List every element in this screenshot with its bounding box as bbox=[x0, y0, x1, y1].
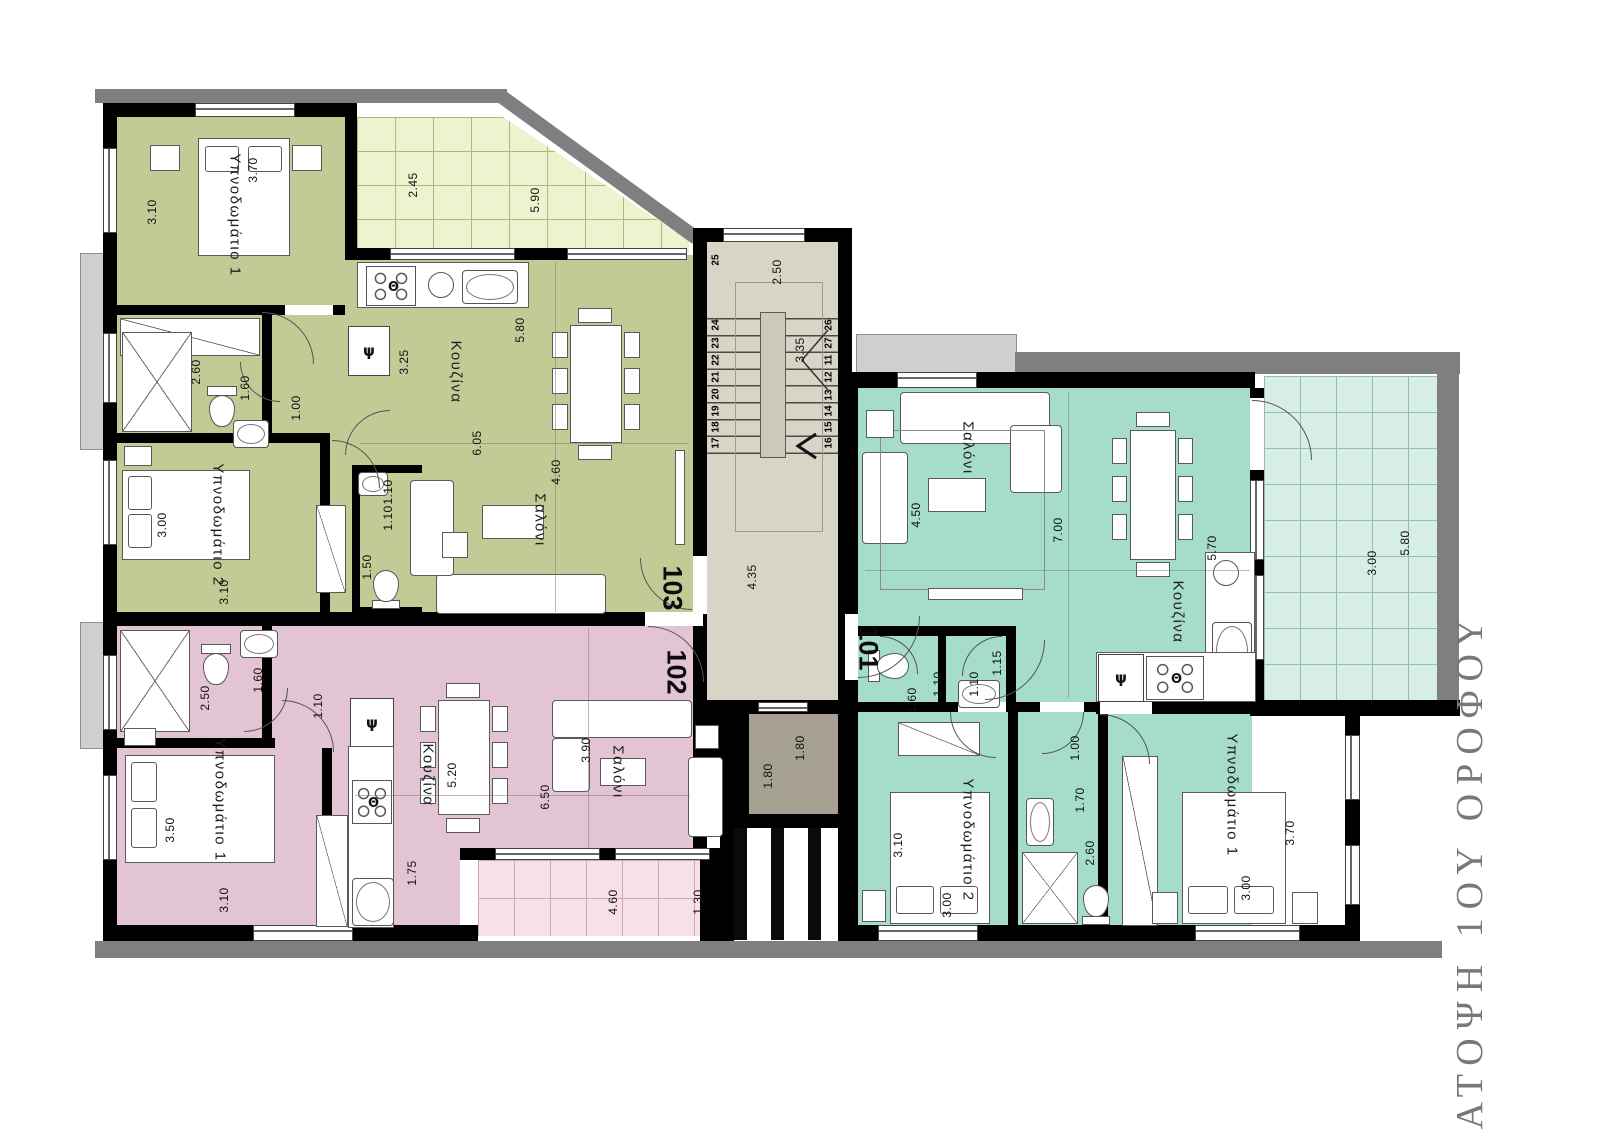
room-label-kitchen: Κουζίνα bbox=[421, 744, 436, 807]
step-number: 25 bbox=[712, 254, 722, 265]
chair bbox=[1178, 514, 1193, 540]
balcony-102 bbox=[478, 860, 727, 936]
step-number: 12 bbox=[825, 371, 835, 382]
window bbox=[1195, 925, 1300, 941]
dim: 3.35 bbox=[794, 337, 806, 362]
nightstand bbox=[862, 890, 886, 922]
window bbox=[103, 148, 117, 233]
dim: 1.10 bbox=[382, 505, 394, 530]
dim: 1.80 bbox=[794, 735, 806, 760]
fridge: ψ bbox=[1098, 654, 1144, 702]
room-label-bedroom2: Υπνοδωμάτιο 2 bbox=[961, 778, 976, 901]
wall bbox=[345, 103, 357, 255]
toilet bbox=[1083, 885, 1109, 917]
exterior-wall-right-top bbox=[1015, 352, 1460, 374]
armchair bbox=[688, 757, 723, 837]
shower bbox=[122, 332, 192, 432]
window bbox=[195, 103, 295, 117]
nightstand bbox=[292, 145, 322, 171]
window bbox=[878, 925, 978, 941]
dim: 3.00 bbox=[941, 892, 953, 917]
chair bbox=[1178, 438, 1193, 464]
drawing-title: ΚΑΤΟΨΗ 1ΟΥ ΟΡΟΦΟΥ bbox=[1448, 610, 1492, 1131]
coffee-table bbox=[928, 478, 986, 512]
chair bbox=[1178, 476, 1193, 502]
step-number: 24 bbox=[712, 319, 722, 330]
pillow bbox=[131, 808, 157, 848]
window bbox=[1250, 480, 1264, 560]
step-number: 23 bbox=[712, 337, 722, 348]
dim: 2.50 bbox=[771, 259, 783, 284]
toilet-tank bbox=[1082, 916, 1110, 925]
door-opening-102 bbox=[645, 612, 703, 626]
wardrobe bbox=[316, 815, 348, 927]
apartment-number-103: 103 bbox=[659, 565, 686, 610]
step-number: 17 bbox=[712, 437, 722, 448]
dim: 1.75 bbox=[406, 860, 418, 885]
wardrobe bbox=[316, 505, 346, 593]
window bbox=[1345, 845, 1360, 905]
tv-bench bbox=[928, 588, 1023, 600]
step-number: 14 bbox=[825, 405, 835, 416]
dim: 3.90 bbox=[580, 737, 592, 762]
dim: 2.45 bbox=[407, 172, 419, 197]
step-number: 19 bbox=[712, 405, 722, 416]
tv-bench bbox=[675, 450, 685, 545]
dim: 3.10 bbox=[218, 887, 230, 912]
chair bbox=[1112, 438, 1127, 464]
dim: 1.10 bbox=[312, 693, 324, 718]
dim: 2.60 bbox=[1084, 840, 1096, 865]
chair bbox=[420, 706, 436, 732]
light-well bbox=[734, 828, 838, 940]
dining-table bbox=[570, 325, 622, 443]
dim: 1.00 bbox=[1069, 735, 1081, 760]
dimension-line bbox=[355, 795, 690, 796]
chair bbox=[624, 332, 640, 358]
wall bbox=[938, 626, 946, 712]
door-opening bbox=[285, 305, 333, 315]
dim: 4.60 bbox=[550, 459, 562, 484]
toilet bbox=[209, 395, 235, 427]
chair bbox=[446, 683, 480, 698]
window bbox=[103, 333, 117, 403]
exterior-wall-bottom bbox=[95, 941, 1442, 958]
window bbox=[103, 775, 117, 860]
elevator-door bbox=[758, 702, 808, 712]
dim: 5.20 bbox=[446, 762, 458, 787]
dim: 2.50 bbox=[199, 685, 211, 710]
dim: 3.00 bbox=[1366, 550, 1378, 575]
window bbox=[253, 925, 353, 941]
dim: 1.30 bbox=[692, 889, 704, 914]
dim: 5.80 bbox=[514, 317, 526, 342]
sofa bbox=[552, 700, 692, 738]
dining-table bbox=[1130, 430, 1176, 560]
dim: 1.70 bbox=[1074, 787, 1086, 812]
side-table bbox=[695, 725, 719, 749]
window bbox=[567, 248, 687, 260]
dim: 3.00 bbox=[1240, 875, 1252, 900]
kitchen-round-sink bbox=[1213, 560, 1239, 586]
stair-stringer bbox=[760, 312, 786, 458]
dim: 2.60 bbox=[190, 359, 202, 384]
dim: 4.60 bbox=[607, 889, 619, 914]
kitchen-sink bbox=[462, 270, 518, 304]
window bbox=[615, 848, 710, 860]
dim: 3.10 bbox=[892, 832, 904, 857]
window bbox=[390, 248, 515, 260]
dimension-line bbox=[555, 262, 556, 612]
window bbox=[1345, 735, 1360, 800]
nightstand bbox=[124, 446, 152, 466]
kitchen-sink bbox=[352, 878, 394, 926]
wall bbox=[735, 700, 749, 828]
dim: 1.80 bbox=[762, 763, 774, 788]
step-number: 26 bbox=[825, 319, 835, 330]
stove-symbol: Θ bbox=[368, 796, 379, 811]
chair bbox=[1136, 412, 1170, 427]
dim: 4.35 bbox=[746, 564, 758, 589]
chair bbox=[624, 404, 640, 430]
wall bbox=[515, 248, 567, 260]
toilet bbox=[203, 653, 229, 685]
step-number: 16 bbox=[825, 437, 835, 448]
step-number: 18 bbox=[712, 421, 722, 432]
dim: 5.90 bbox=[529, 187, 541, 212]
dim: 6.05 bbox=[471, 430, 483, 455]
exterior-ledge-top-right bbox=[856, 334, 1017, 376]
exterior-wall-top bbox=[95, 89, 507, 103]
wall bbox=[117, 433, 330, 443]
stove-symbol: Θ bbox=[1171, 672, 1182, 687]
dim: 3.70 bbox=[1284, 820, 1296, 845]
step-number: 13 bbox=[825, 389, 835, 400]
dim: 1.60 bbox=[252, 667, 264, 692]
kitchen-round-sink bbox=[428, 272, 454, 298]
step-number: 27 bbox=[825, 337, 835, 348]
chair bbox=[492, 778, 508, 804]
toilet bbox=[373, 570, 399, 602]
dim: 6.50 bbox=[539, 784, 551, 809]
dim: 1.10 bbox=[382, 479, 394, 504]
landing-floor bbox=[707, 612, 852, 712]
window bbox=[103, 655, 117, 730]
room-label-salon: Σαλόνι bbox=[533, 493, 548, 546]
sofa bbox=[410, 480, 454, 576]
nightstand bbox=[1152, 892, 1178, 924]
chair bbox=[446, 818, 480, 833]
shower bbox=[1022, 852, 1078, 924]
step-number: 22 bbox=[712, 354, 722, 365]
fridge: ψ bbox=[350, 698, 394, 748]
chair bbox=[578, 445, 612, 460]
room-label-salon: Σαλόνι bbox=[611, 745, 626, 798]
dim: 5.70 bbox=[1206, 535, 1218, 560]
wall bbox=[700, 848, 734, 941]
wall bbox=[345, 248, 390, 260]
nightstand bbox=[150, 145, 180, 171]
stove-symbol: Θ bbox=[388, 280, 399, 295]
dim: 1.60 bbox=[239, 375, 251, 400]
chair bbox=[492, 742, 508, 768]
fridge: ψ bbox=[348, 326, 390, 376]
chair bbox=[1112, 514, 1127, 540]
step-number: 20 bbox=[712, 388, 722, 399]
side-table bbox=[866, 410, 894, 438]
dimension-line bbox=[865, 570, 1250, 571]
dim: 3.70 bbox=[247, 157, 259, 182]
step-number: 11 bbox=[824, 355, 834, 366]
step-number: 21 bbox=[712, 371, 722, 382]
apartment-number-102: 102 bbox=[663, 649, 690, 694]
door-opening bbox=[1040, 702, 1084, 712]
room-label-kitchen: Κουζίνα bbox=[1171, 581, 1186, 644]
floor-plan: Θ ψ ψ Θ bbox=[0, 0, 1600, 1131]
apartment-number-101: 101 bbox=[855, 625, 882, 670]
chair bbox=[578, 308, 612, 323]
dim: 3.50 bbox=[164, 817, 176, 842]
nightstand bbox=[1292, 892, 1318, 924]
washbasin bbox=[240, 630, 278, 658]
dimension-line bbox=[1068, 392, 1069, 698]
room-label-bedroom1: Υπνοδωμάτιο 1 bbox=[1225, 733, 1240, 856]
dim: 3.25 bbox=[398, 349, 410, 374]
window bbox=[103, 460, 117, 545]
pillow bbox=[128, 476, 152, 510]
dim: 1.10 bbox=[932, 671, 944, 696]
dim: 1.10 bbox=[968, 671, 980, 696]
pillow bbox=[1188, 886, 1228, 914]
pillow bbox=[896, 886, 934, 914]
dim: 3.00 bbox=[156, 512, 168, 537]
wall bbox=[735, 814, 852, 828]
pillow bbox=[131, 762, 157, 802]
room-label-bedroom1: Υπνοδωμάτιο 1 bbox=[213, 738, 228, 861]
wall bbox=[1008, 710, 1018, 941]
dim: 4.50 bbox=[910, 502, 922, 527]
dim: 1.50 bbox=[361, 554, 373, 579]
room-label-bedroom1: Υπνοδωμάτιο 1 bbox=[228, 153, 243, 276]
room-label-bedroom2: Υπνοδωμάτιο 2 bbox=[211, 463, 226, 586]
dim: 1.00 bbox=[290, 395, 302, 420]
washbasin bbox=[1026, 798, 1054, 846]
chair bbox=[1112, 476, 1127, 502]
wall bbox=[838, 700, 852, 828]
window bbox=[495, 848, 600, 860]
shower bbox=[120, 630, 190, 732]
washbasin bbox=[233, 420, 269, 448]
sofa bbox=[436, 574, 606, 614]
dimension-line bbox=[360, 443, 688, 444]
door-opening-103 bbox=[693, 556, 707, 614]
dim: 3.10 bbox=[146, 199, 158, 224]
step-number: 15 bbox=[825, 421, 835, 432]
pillow bbox=[128, 514, 152, 548]
dim: 1.15 bbox=[991, 650, 1003, 675]
door-opening bbox=[1100, 700, 1152, 714]
room-label-kitchen: Κουζίνα bbox=[449, 341, 464, 404]
dim: 3.10 bbox=[218, 579, 230, 604]
dim: 1.60 bbox=[906, 687, 918, 712]
chair bbox=[492, 706, 508, 732]
nightstand bbox=[124, 728, 156, 746]
dim: 5.80 bbox=[1399, 530, 1411, 555]
room-label-salon: Σαλόνι bbox=[961, 421, 976, 474]
dim: 7.00 bbox=[1052, 517, 1064, 542]
side-table bbox=[442, 532, 468, 558]
window bbox=[897, 372, 977, 388]
window bbox=[723, 228, 805, 242]
wall bbox=[838, 828, 852, 941]
chair bbox=[624, 368, 640, 394]
dining-table bbox=[438, 700, 490, 815]
